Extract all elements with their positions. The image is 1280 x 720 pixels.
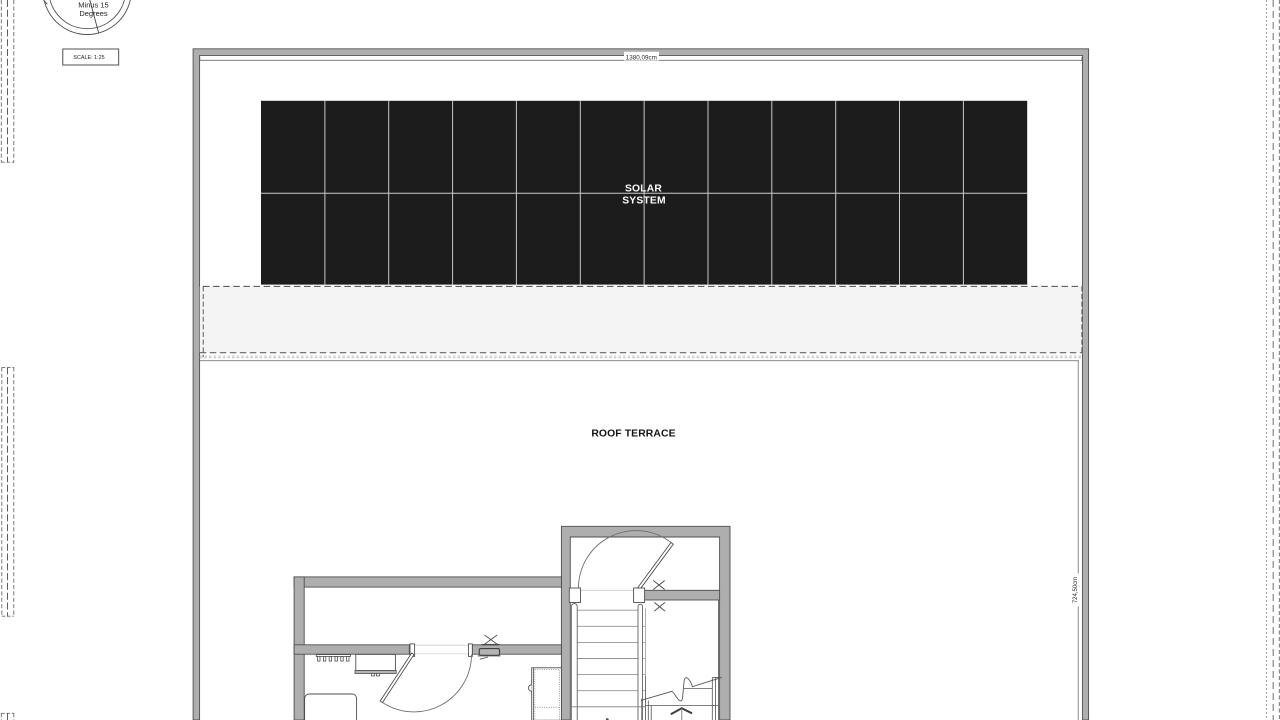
- svg-text:724,50cm: 724,50cm: [1073, 577, 1079, 603]
- svg-text:Minus 15: Minus 15: [78, 0, 108, 9]
- svg-text:Degrees: Degrees: [79, 9, 108, 18]
- svg-text:SCALE: 1:25: SCALE: 1:25: [73, 55, 104, 61]
- svg-text:1380,09cm: 1380,09cm: [626, 55, 657, 62]
- svg-text:SOLAR: SOLAR: [625, 184, 662, 195]
- svg-text:SYSTEM: SYSTEM: [622, 196, 666, 207]
- svg-text:ROOF TERRACE: ROOF TERRACE: [591, 428, 675, 439]
